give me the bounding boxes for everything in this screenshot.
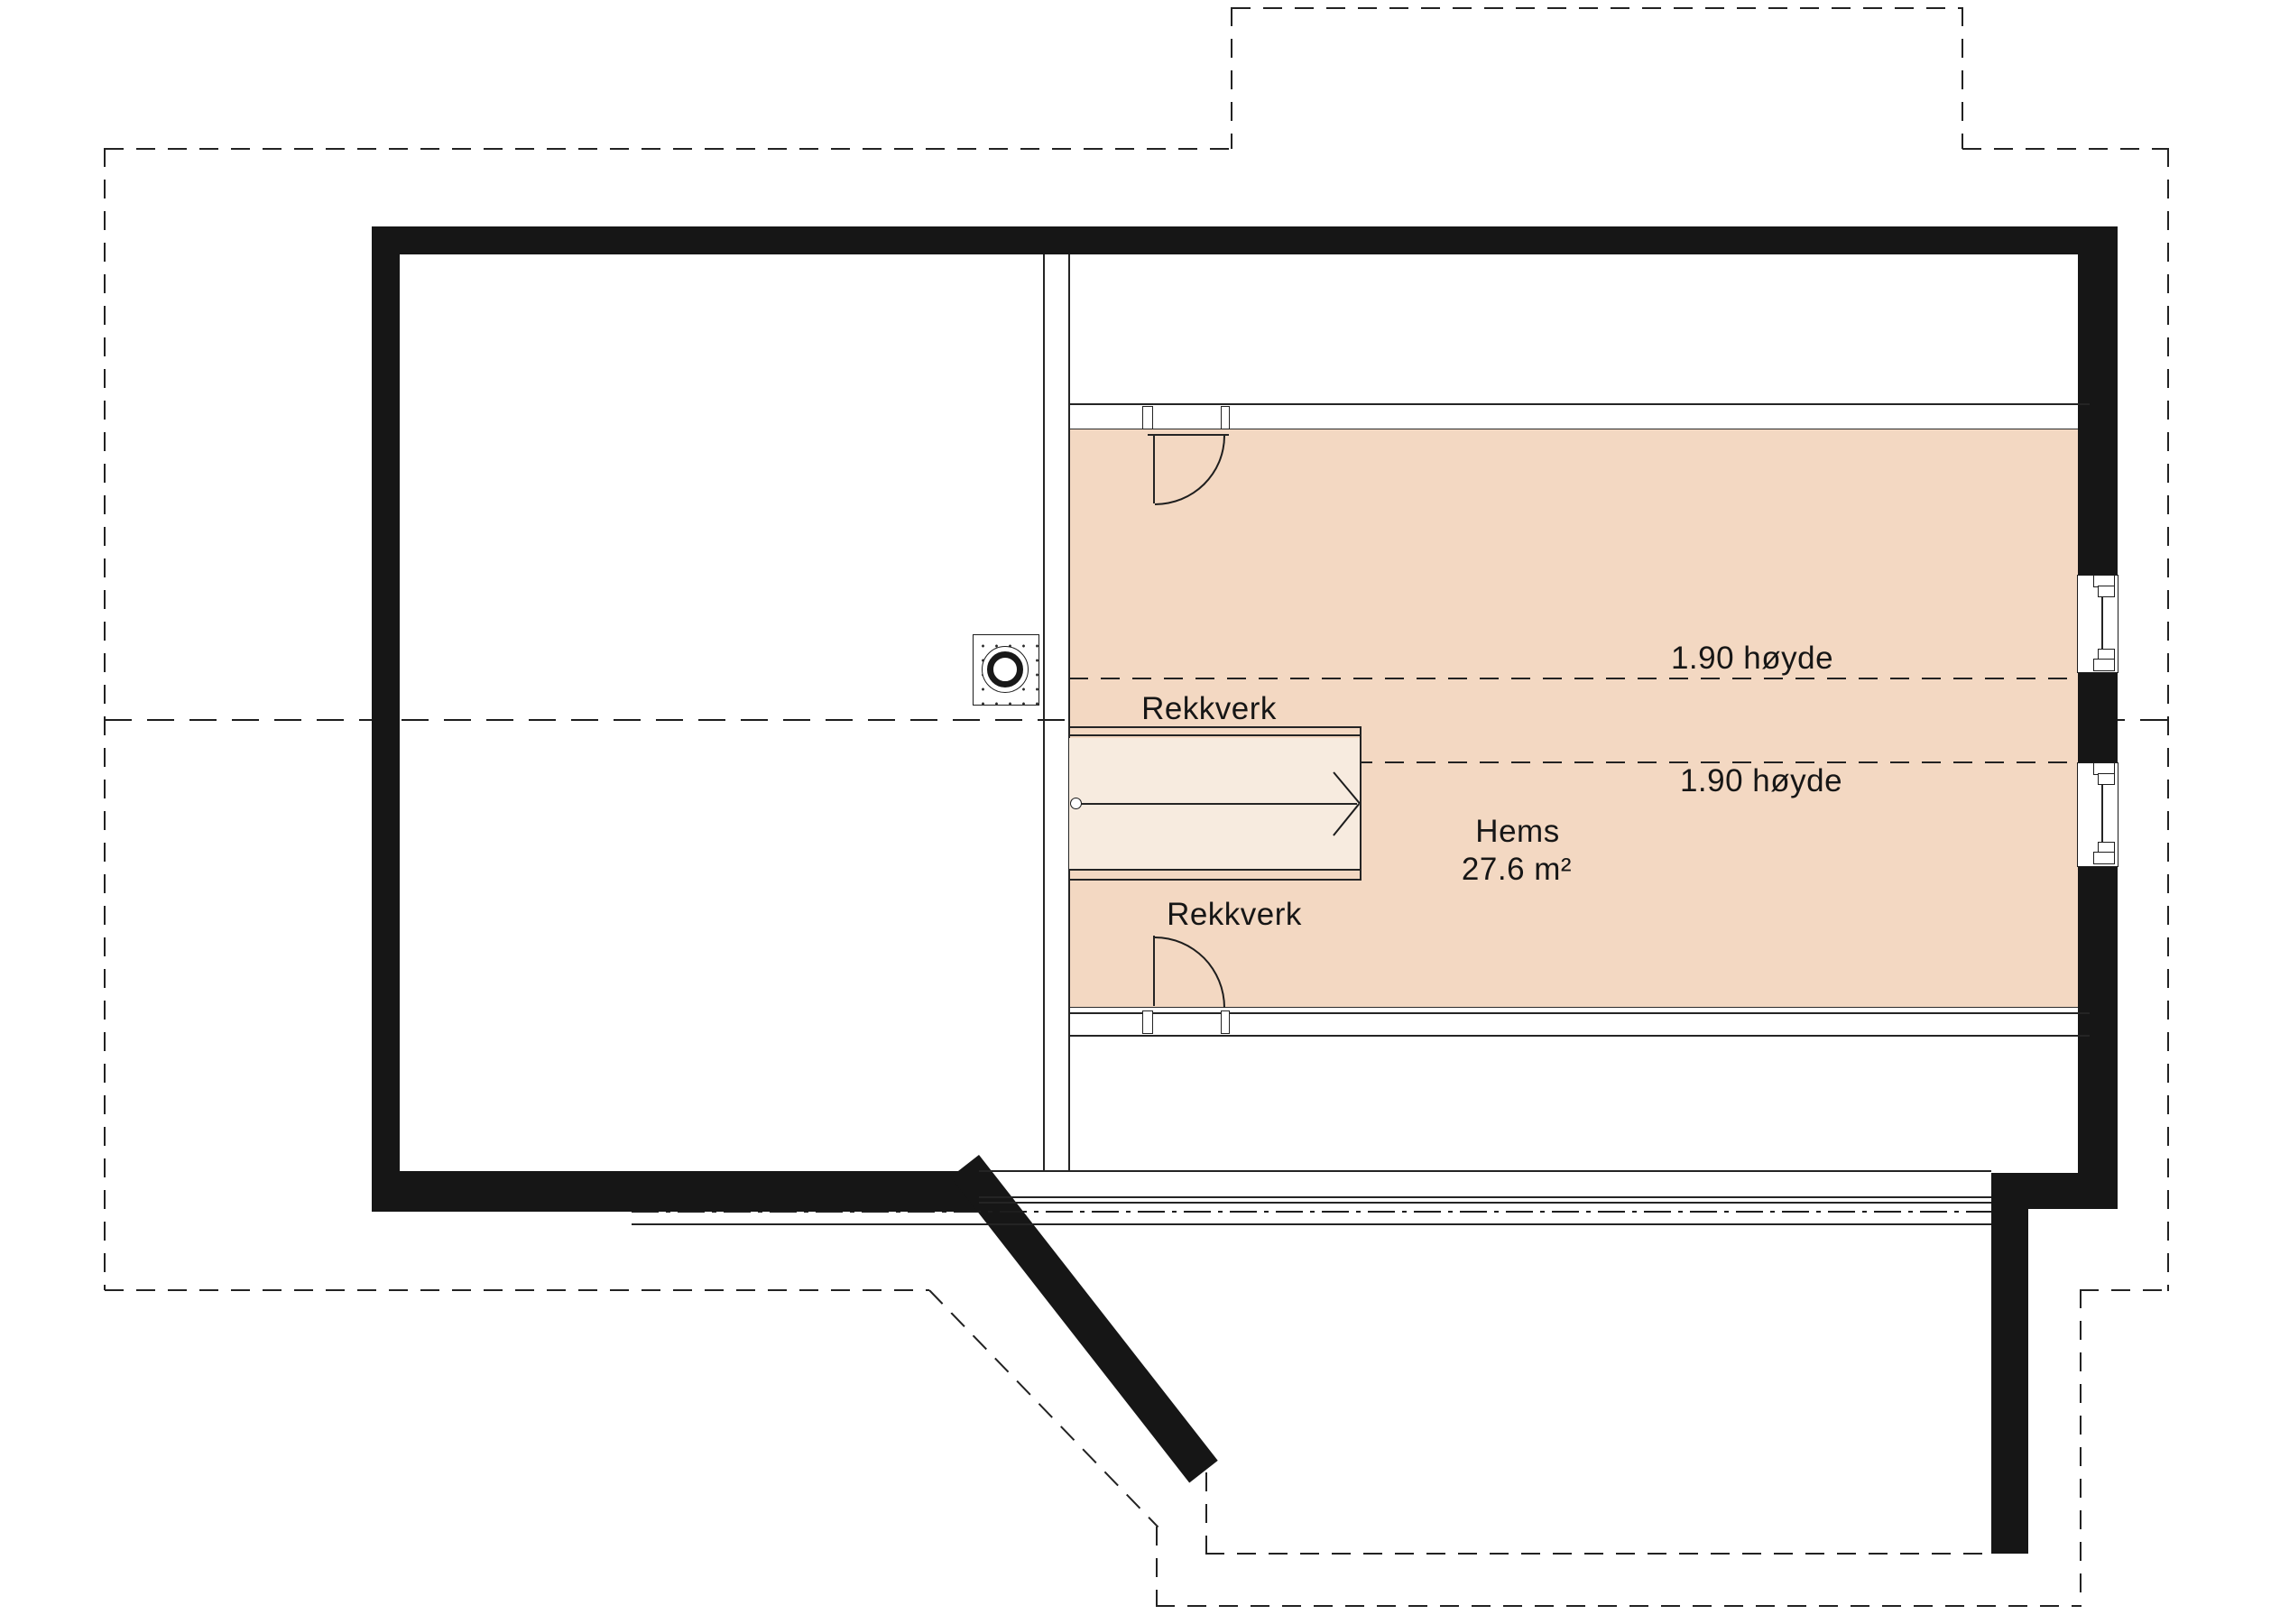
wall-right [2078,226,2118,1209]
kneewall-bottom-line2 [1068,1035,2090,1037]
kneewall-top-line [1068,403,2090,405]
deck-edge-mid2 [979,1202,1991,1204]
roof-outline-right-lower [2080,1289,2082,1607]
height-line-upper [1069,678,2078,679]
door-lower-right-jamb [1221,1010,1230,1034]
roof-outline-entry-right [1962,7,1963,149]
railing-label-top: Rekkverk [1141,691,1277,727]
railing-bottom-line2 [1068,879,1362,881]
wall-top [372,226,2118,254]
roof-outline-top-left [105,148,1232,150]
stair-right-edge [1360,726,1362,881]
wall-diagonal-stair [950,1155,1217,1482]
deck-edge-top [979,1170,1991,1172]
height-label-upper: 1.90 høyde [1671,641,1833,677]
door-upper-left-jamb [1142,406,1153,429]
partition-wall-right-line [1068,254,1070,1170]
wall-left [372,226,400,1212]
door-lower-left-jamb [1142,1010,1153,1034]
wall-bottom-right [1991,1173,2118,1209]
window-upper-block-top2 [2098,586,2115,597]
window-lower-block-top2 [2098,773,2115,785]
height-label-lower: 1.90 høyde [1680,763,1842,799]
window-lower-block-bottom [2093,852,2115,864]
stair-arrow-start-circle [1070,798,1082,809]
deck-edge-bottom [632,1223,1991,1225]
roof-outline-below-stair [1156,1527,1158,1607]
door-upper-right-jamb [1221,406,1230,429]
roof-outline-diagonal [928,1289,1158,1527]
roof-outline-top-right [1962,148,2168,150]
deck-edge-mid1 [979,1196,1991,1198]
room-name: Hems [1475,814,1559,850]
railing-bottom-line1 [1068,869,1362,871]
window-upper-block-bottom [2093,659,2115,671]
railing-label-bottom: Rekkverk [1167,897,1302,933]
railing-top-line2 [1068,734,1362,736]
roof-outline-entry-top [1232,7,1962,9]
entry-dashed-left [1205,1472,1207,1555]
wall-bottom-left [372,1171,979,1212]
room-area: 27.6 m² [1462,852,1572,888]
deck-centerline [632,1211,1991,1213]
roof-outline-bottom-right-step [2080,1289,2168,1291]
roof-outline-bottom-left [105,1289,929,1291]
stair-direction-arrow [1075,803,1357,805]
chimney-flue-ring [987,651,1023,687]
wall-stub-entry [1991,1209,2028,1554]
window-lower-mullion [2101,777,2103,852]
partition-wall-left-line [1043,254,1045,1170]
entry-dashed-bottom [1205,1553,1991,1555]
roof-outline-bottom [1156,1605,2082,1607]
floor-plan: Rekkverk Rekkverk 1.90 høyde 1.90 høyde … [0,0,2280,1624]
roof-outline-entry-left [1231,7,1232,149]
